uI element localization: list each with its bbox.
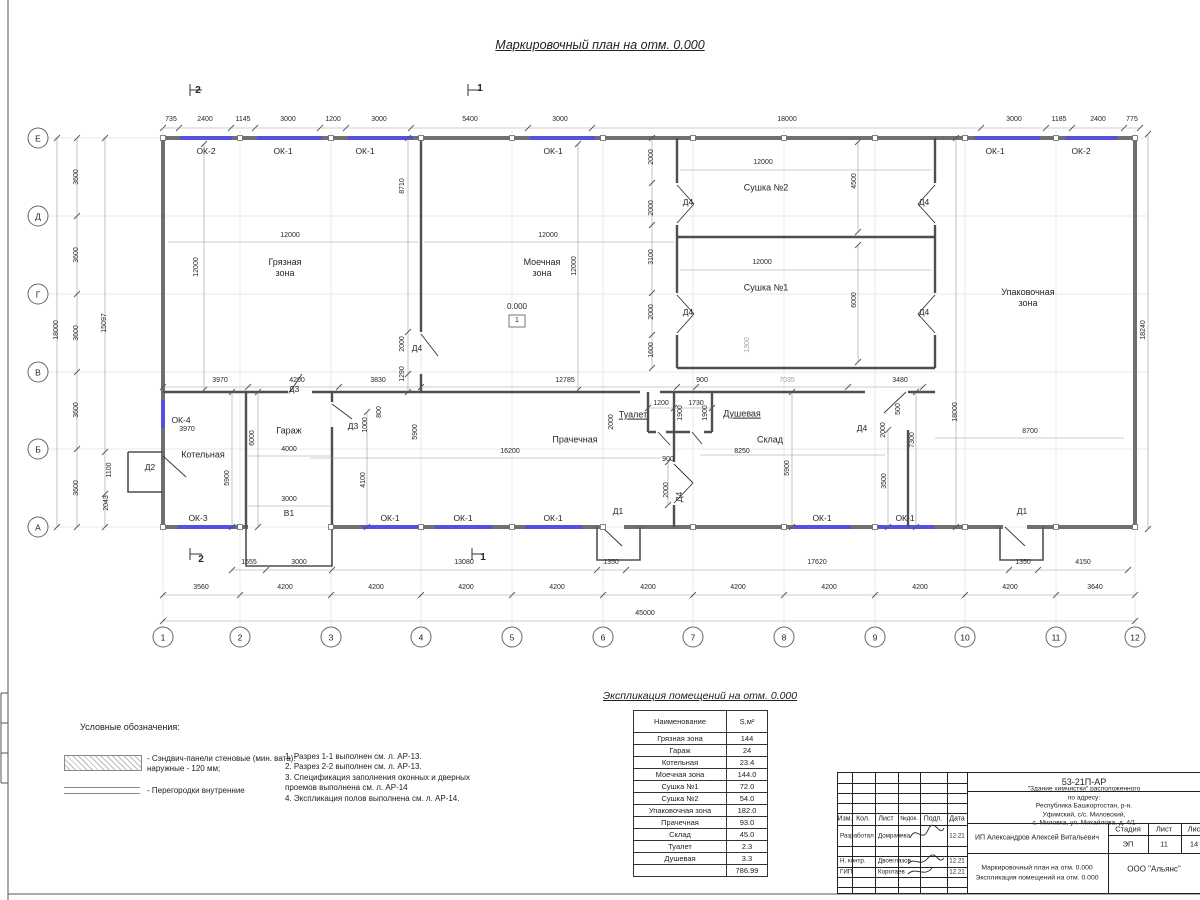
- dim-label: 2400: [1090, 116, 1106, 124]
- level-mark: 0.000: [507, 302, 527, 312]
- axis-column-bubble: 7: [683, 627, 704, 648]
- dim-label: 1350: [603, 559, 619, 567]
- opening-label: ОК-1: [895, 513, 914, 523]
- dim-label: 2400: [197, 116, 213, 124]
- dim-label: 1900: [702, 405, 710, 421]
- dim-label: 500: [895, 403, 903, 415]
- dim-label: 15097: [101, 313, 109, 332]
- opening-label: Д1: [1017, 506, 1027, 516]
- dim-label: 3600: [73, 325, 81, 341]
- opening-label: ОК-4: [171, 415, 190, 425]
- dim-label: 18000: [53, 320, 61, 339]
- room-label: Туалет: [619, 410, 647, 421]
- schedule-row: Моечная зона144.0: [634, 769, 768, 781]
- dim-label: 3600: [73, 480, 81, 496]
- opening-label: ОК-2: [1071, 146, 1090, 156]
- dim-label: 5900: [412, 424, 420, 440]
- dim-label: 12000: [280, 232, 299, 240]
- axis-row-bubble: Г: [28, 284, 49, 305]
- dim-label: 45000: [635, 610, 654, 618]
- dim-label: 1350: [1015, 559, 1031, 567]
- schedule-total-spacer: [634, 865, 727, 877]
- tb-row3-role: ГИП: [840, 869, 852, 876]
- schedule-row: Туалет2.3: [634, 841, 768, 853]
- schedule-row: Котельная23.4: [634, 757, 768, 769]
- dim-label: 4200: [549, 584, 565, 592]
- schedule-room-area: 93.0: [727, 817, 768, 829]
- opening-label: ОК-1: [543, 513, 562, 523]
- schedule-room-name: Грязная зона: [634, 733, 727, 745]
- dim-label: 6000: [249, 430, 257, 446]
- schedule-room-name: Котельная: [634, 757, 727, 769]
- tb-stage-label: Стадия: [1115, 825, 1141, 834]
- dim-label: 12000: [193, 257, 201, 276]
- opening-label: Д4: [683, 197, 693, 207]
- tb-sheet-label: Лист: [1156, 825, 1172, 834]
- section-mark-label: 2: [195, 85, 201, 97]
- dim-label: 3600: [73, 402, 81, 418]
- dim-label: 4000: [281, 446, 297, 454]
- dim-label: 8700: [1022, 428, 1038, 436]
- opening-label: ОК-1: [380, 513, 399, 523]
- opening-label: Д3: [348, 421, 358, 431]
- opening-label: Д4: [674, 492, 684, 502]
- dim-label: 2000: [648, 149, 656, 165]
- legend-item-1: - Сэндвич-панели стеновые (мин. вата): н…: [147, 754, 296, 774]
- dim-label: 3000: [281, 496, 297, 504]
- tb-company: ООО "Альянс": [1127, 865, 1181, 874]
- notes-block: 1. Разрез 1-1 выполнен см. л. АР-13. 2. …: [285, 752, 470, 804]
- dim-label: 1000: [362, 417, 370, 433]
- title-block: 53-21П-АР "Здание химчистки" расположенн…: [837, 772, 1200, 894]
- opening-label: ОК-1: [543, 146, 562, 156]
- tb-col-kol: Кол.: [856, 816, 870, 823]
- schedule-room-area: 3.3: [727, 853, 768, 865]
- tb-col-ndok: №док.: [900, 816, 918, 822]
- schedule-row: Прачечная93.0: [634, 817, 768, 829]
- dim-label: 4200: [458, 584, 474, 592]
- tb-row3-name: Коротаев: [878, 869, 905, 876]
- dim-label: 4200: [368, 584, 384, 592]
- axis-column-bubble: 6: [593, 627, 614, 648]
- dim-label: 18240: [1140, 320, 1148, 339]
- schedule-row: Гараж24: [634, 745, 768, 757]
- dim-label: 1300: [744, 337, 752, 353]
- opening-label: Д4: [857, 423, 867, 433]
- dim-label: 16200: [500, 448, 519, 456]
- tb-row2-date: 12.21: [949, 858, 964, 865]
- legend-sandwich-panel-symbol: [64, 755, 142, 771]
- schedule-room-name: Моечная зона: [634, 769, 727, 781]
- schedule-room-name: Прачечная: [634, 817, 727, 829]
- axis-row-bubble: А: [28, 517, 49, 538]
- schedule-row: Склад45.0: [634, 829, 768, 841]
- dim-label: 2000: [399, 336, 407, 352]
- axis-row-bubble: Б: [28, 439, 49, 460]
- schedule-room-area: 54.0: [727, 793, 768, 805]
- dim-label: 2000: [648, 304, 656, 320]
- tb-sheet-value: 11: [1160, 840, 1168, 849]
- opening-label: Д3: [289, 384, 299, 394]
- tb-row1-role: Разработал: [840, 833, 874, 840]
- dim-label: 4100: [360, 472, 368, 488]
- tb-col-list: Лист: [878, 816, 893, 823]
- axis-column-bubble: 2: [230, 627, 251, 648]
- tb-drawing-name-1: Маркировочный план на отм. 0.000: [981, 865, 1092, 872]
- schedule-col-area: S,м²: [727, 711, 768, 733]
- dim-label: 4500: [851, 173, 859, 189]
- dim-label: 4200: [1002, 584, 1018, 592]
- tb-sheets-label: Лис: [1188, 825, 1200, 834]
- dim-label: 2000: [880, 422, 888, 438]
- schedule-room-name: Упаковочная зона: [634, 805, 727, 817]
- dim-label: 3600: [73, 169, 81, 185]
- dim-label: 1200: [653, 400, 669, 408]
- room-label: Котельная: [181, 450, 225, 461]
- dim-label: 12785: [555, 377, 574, 385]
- dim-label: 13080: [454, 559, 473, 567]
- schedule-row: Грязная зона144: [634, 733, 768, 745]
- dim-label: 3970: [179, 426, 195, 434]
- dim-label: 4150: [1075, 559, 1091, 567]
- dim-label: 3830: [370, 377, 386, 385]
- porches: [128, 452, 1043, 566]
- dim-label: 18000: [952, 402, 960, 421]
- dim-label: 1600: [648, 342, 656, 358]
- dim-label: 775: [1126, 116, 1138, 124]
- axis-column-bubble: 12: [1125, 627, 1146, 648]
- axis-column-bubble: 10: [955, 627, 976, 648]
- legend-title: Условные обозначения:: [80, 722, 180, 732]
- dim-label: 3640: [1087, 584, 1103, 592]
- dim-label: 4200: [640, 584, 656, 592]
- opening-label: ОК-1: [985, 146, 1004, 156]
- dim-label: 6000: [851, 292, 859, 308]
- tb-address: "Здание химчистки" расположенного по адр…: [1026, 786, 1143, 829]
- axis-row-bubble: В: [28, 362, 49, 383]
- room-schedule-table: Наименование S,м² Грязная зона144Гараж24…: [633, 710, 768, 877]
- room-label: Сушка №2: [744, 183, 789, 194]
- dim-label: 8250: [734, 448, 750, 456]
- dim-label: 3600: [73, 247, 81, 263]
- room-label: Прачечная: [552, 435, 597, 446]
- dim-label: 2000: [648, 200, 656, 216]
- schedule-room-area: 182.0: [727, 805, 768, 817]
- axis-column-bubble: 1: [153, 627, 174, 648]
- axis-column-bubble: 3: [321, 627, 342, 648]
- dim-label: 800: [376, 406, 384, 418]
- axis-row-bubble: Е: [28, 128, 49, 149]
- opening-label: ОК-1: [812, 513, 831, 523]
- dim-label: 12000: [571, 256, 579, 275]
- schedule-room-area: 24: [727, 745, 768, 757]
- dim-label: 3000: [1006, 116, 1022, 124]
- schedule-room-area: 144: [727, 733, 768, 745]
- opening-label: Д4: [919, 197, 929, 207]
- schedule-row: Упаковочная зона182.0: [634, 805, 768, 817]
- tb-row2-name: Двоеглазов: [878, 858, 911, 865]
- section-mark-label: 2: [198, 554, 204, 566]
- dim-label: 900: [696, 377, 708, 385]
- tb-col-izm: Изм.: [838, 816, 853, 823]
- schedule-title: Экспликация помещений на отм. 0.000: [603, 690, 797, 702]
- dim-label: 12000: [538, 232, 557, 240]
- axis-column-bubble: 11: [1046, 627, 1067, 648]
- opening-label: ОК-3: [188, 513, 207, 523]
- page-title: Маркировочный план на отм. 0.000: [495, 38, 704, 52]
- section-marks: [190, 84, 484, 560]
- dim-label: 3000: [280, 116, 296, 124]
- schedule-room-name: Сушка №1: [634, 781, 727, 793]
- schedule-total: 786.99: [727, 865, 768, 877]
- dim-label: 2043: [103, 495, 111, 511]
- dim-label: 900: [662, 456, 674, 464]
- axis-column-bubble: 9: [865, 627, 886, 648]
- dim-label: 12000: [753, 159, 772, 167]
- dim-label: 2000: [663, 482, 671, 498]
- dim-label: 7035: [779, 377, 795, 385]
- tb-drawing-name-2: Экспликация помещений на отм. 0.000: [975, 875, 1098, 882]
- dim-label: 4200: [821, 584, 837, 592]
- dim-label: 3480: [892, 377, 908, 385]
- opening-label: Д4: [412, 343, 422, 353]
- dim-label: 8710: [399, 178, 407, 194]
- schedule-room-name: Сушка №2: [634, 793, 727, 805]
- opening-label: Д4: [919, 307, 929, 317]
- dim-label: 4200: [277, 584, 293, 592]
- room-label: Грязная зона: [268, 257, 301, 279]
- schedule-room-area: 45.0: [727, 829, 768, 841]
- room-label: Гараж: [276, 426, 301, 437]
- dim-label: 7300: [909, 432, 917, 448]
- schedule-col-name: Наименование: [634, 711, 727, 733]
- schedule-row: Сушка №172.0: [634, 781, 768, 793]
- tb-client: ИП Александров Алексей Витальевич: [975, 835, 1099, 842]
- section-mark-label: 1: [477, 83, 483, 95]
- opening-label: Д2: [145, 462, 155, 472]
- dim-label: 3000: [291, 559, 307, 567]
- tb-stage-value: ЭП: [1123, 840, 1134, 849]
- opening-label: Д1: [613, 506, 623, 516]
- dim-label: 3500: [881, 473, 889, 489]
- schedule-room-name: Склад: [634, 829, 727, 841]
- dim-label: 3970: [212, 377, 228, 385]
- schedule-row: Сушка №254.0: [634, 793, 768, 805]
- dim-label: 5400: [462, 116, 478, 124]
- tb-col-podp: Подп.: [924, 816, 943, 823]
- tb-row2-role: Н. контр.: [840, 858, 866, 865]
- room-label: Упаковочная зона: [1001, 287, 1054, 309]
- dim-label: 1555: [241, 559, 257, 567]
- dim-label: 3000: [371, 116, 387, 124]
- opening-label: ОК-1: [453, 513, 472, 523]
- dim-label: 1200: [325, 116, 341, 124]
- interior-walls: [163, 138, 935, 527]
- dim-label: 1290: [399, 366, 407, 382]
- exterior-walls: [161, 136, 1137, 529]
- legend-partition-symbol: [64, 787, 140, 794]
- dim-label: 3000: [552, 116, 568, 124]
- dim-label: 17620: [807, 559, 826, 567]
- tb-row3-date: 12.21: [949, 869, 964, 876]
- tb-sheets-value: 14: [1190, 840, 1198, 849]
- dim-label: 3560: [193, 584, 209, 592]
- legend-item-2: - Перегородки внутренние: [147, 786, 245, 796]
- opening-label: В1: [284, 508, 294, 518]
- dim-label: 1185: [1051, 116, 1066, 124]
- opening-label: ОК-2: [196, 146, 215, 156]
- room-label: Склад: [757, 435, 783, 446]
- dim-label: 735: [165, 116, 177, 124]
- opening-label: Д4: [683, 307, 693, 317]
- dim-label: 1900: [677, 405, 685, 421]
- schedule-room-name: Душевая: [634, 853, 727, 865]
- drawing-sheet: { "colors": { "window_accent": "#5551e0"…: [0, 0, 1200, 900]
- dim-label: 2000: [608, 414, 616, 430]
- dim-label: 5900: [784, 460, 792, 476]
- room-label: Душевая: [723, 409, 761, 420]
- axis-column-bubble: 4: [411, 627, 432, 648]
- schedule-room-area: 23.4: [727, 757, 768, 769]
- dim-label: 12000: [752, 259, 771, 267]
- schedule-room-name: Туалет: [634, 841, 727, 853]
- section-mark-label: 1: [480, 552, 486, 564]
- schedule-row: Душевая3.3: [634, 853, 768, 865]
- tb-row1-date: 12.21: [949, 833, 964, 840]
- schedule-room-name: Гараж: [634, 745, 727, 757]
- opening-label: ОК-1: [273, 146, 292, 156]
- dim-label: 1145: [235, 116, 250, 124]
- level-tag: 1: [515, 317, 519, 325]
- axis-column-bubble: 8: [774, 627, 795, 648]
- schedule-room-area: 2.3: [727, 841, 768, 853]
- dim-label: 4200: [912, 584, 928, 592]
- tb-col-data: Дата: [949, 816, 965, 823]
- axis-column-bubble: 5: [502, 627, 523, 648]
- dim-label: 4200: [730, 584, 746, 592]
- window-strips: [163, 138, 1117, 527]
- dim-label: 3100: [648, 249, 656, 265]
- tb-row1-name: Домрачева: [878, 833, 910, 840]
- room-label: Сушка №1: [744, 283, 789, 294]
- axis-row-bubble: Д: [28, 206, 49, 227]
- dim-label: 18000: [777, 116, 796, 124]
- dim-label: 1100: [106, 462, 114, 477]
- schedule-room-area: 144.0: [727, 769, 768, 781]
- opening-label: ОК-1: [355, 146, 374, 156]
- dim-label: 5900: [224, 470, 232, 486]
- schedule-room-area: 72.0: [727, 781, 768, 793]
- room-label: Моечная зона: [524, 257, 561, 279]
